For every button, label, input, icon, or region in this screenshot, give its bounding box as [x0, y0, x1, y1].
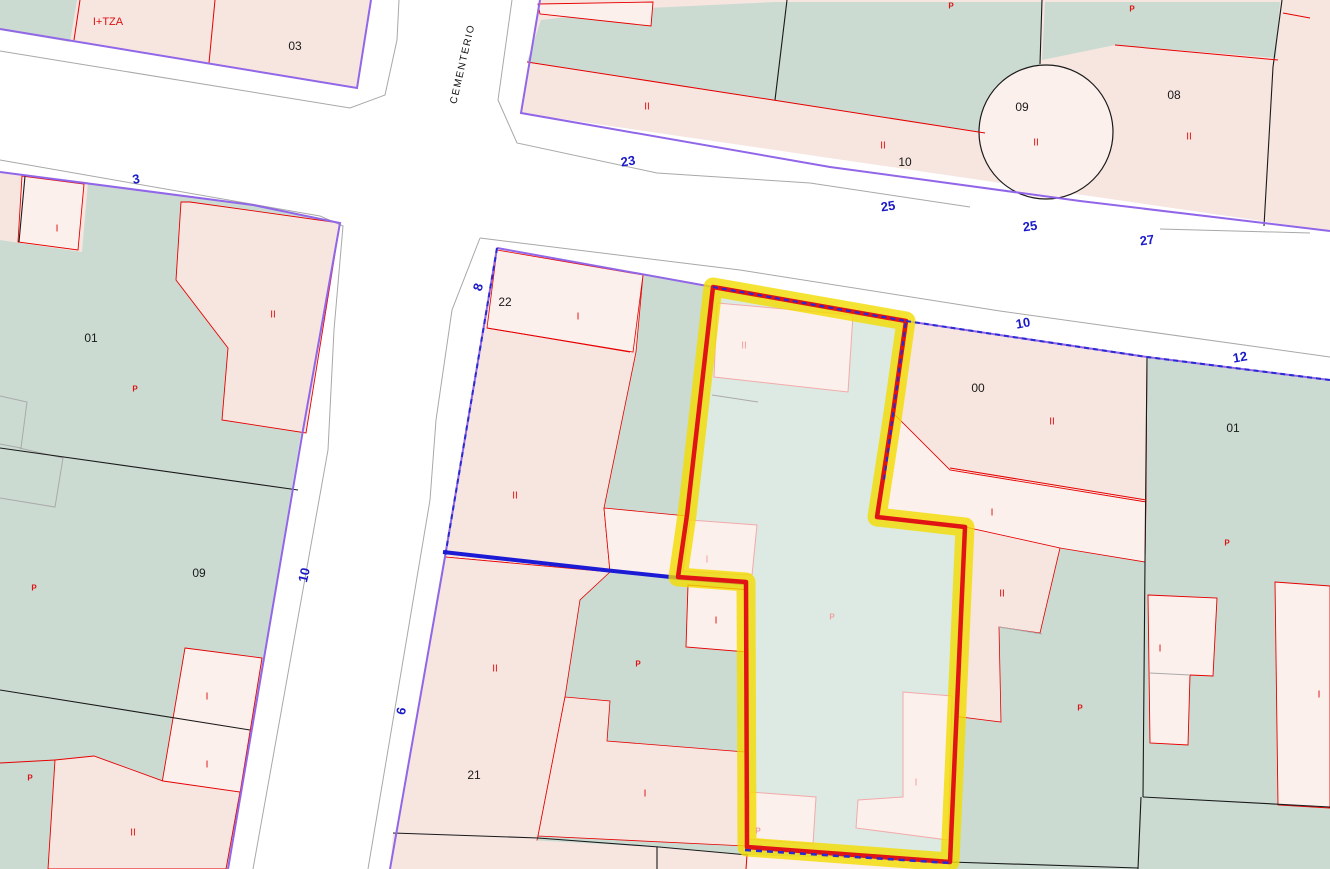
floors-label: I+TZA — [93, 16, 124, 28]
floors-label-faded: P — [755, 827, 761, 836]
floors-label: I — [1159, 644, 1162, 655]
floors-label: P — [1077, 704, 1083, 713]
floors-label: II — [512, 491, 518, 502]
floors-label: I — [715, 616, 718, 627]
floors-label: I — [644, 789, 647, 800]
floors-label: P — [635, 660, 641, 669]
floors-label: II — [1033, 138, 1039, 149]
parcel-number: 01 — [84, 331, 98, 345]
floors-label: P — [1129, 5, 1135, 14]
floors-label-faded: II — [741, 341, 747, 352]
parcel-number: 09 — [1015, 100, 1029, 114]
floors-label: I — [206, 760, 209, 771]
floors-label: P — [132, 385, 138, 394]
floors-label: I — [991, 508, 994, 519]
parcel-number: 22 — [498, 295, 512, 309]
floors-label-faded: I — [915, 778, 918, 789]
floors-label: I — [206, 692, 209, 703]
floors-label: II — [1186, 132, 1192, 143]
street-number: 27 — [1139, 232, 1155, 249]
floors-label-faded: P — [829, 613, 835, 622]
floors-label: II — [644, 102, 650, 113]
floors-label: I — [1318, 690, 1321, 701]
parcel-circle-09[interactable] — [979, 65, 1113, 199]
floors-label: II — [1049, 417, 1055, 428]
floors-label: I — [577, 312, 580, 323]
floors-label: II — [130, 828, 136, 839]
floors-label: P — [31, 584, 37, 593]
floors-label: P — [948, 2, 954, 11]
parcel-number: 09 — [192, 566, 206, 580]
floors-label: II — [270, 310, 276, 321]
floors-label: P — [27, 774, 33, 783]
building-right-2[interactable] — [1275, 582, 1330, 808]
floors-label: I — [56, 224, 59, 235]
street-number: 10 — [1015, 314, 1032, 331]
parcel-number: 01 — [1226, 421, 1240, 435]
map-viewport[interactable]: 0309081001220001092132325252710128106I+T… — [0, 0, 1330, 869]
street-number: 25 — [1022, 218, 1038, 235]
parcel-number: 08 — [1167, 88, 1181, 102]
cadastral-map[interactable]: 0309081001220001092132325252710128106I+T… — [0, 0, 1330, 869]
floors-label: P — [1224, 539, 1230, 548]
floors-label-faded: I — [706, 555, 709, 566]
building-left-i[interactable] — [18, 176, 84, 250]
floors-label: II — [999, 589, 1005, 600]
parcel-number: 10 — [898, 155, 912, 169]
street-number: 25 — [880, 198, 896, 215]
parcel-number: 00 — [971, 381, 985, 395]
parcel-number: 21 — [467, 768, 481, 782]
selected-building-bl[interactable] — [748, 792, 816, 844]
street-number: 12 — [1232, 348, 1249, 365]
floors-label: II — [880, 141, 886, 152]
parcel-number: 03 — [288, 39, 302, 53]
street-number: 23 — [620, 152, 637, 169]
floors-label: II — [492, 664, 498, 675]
